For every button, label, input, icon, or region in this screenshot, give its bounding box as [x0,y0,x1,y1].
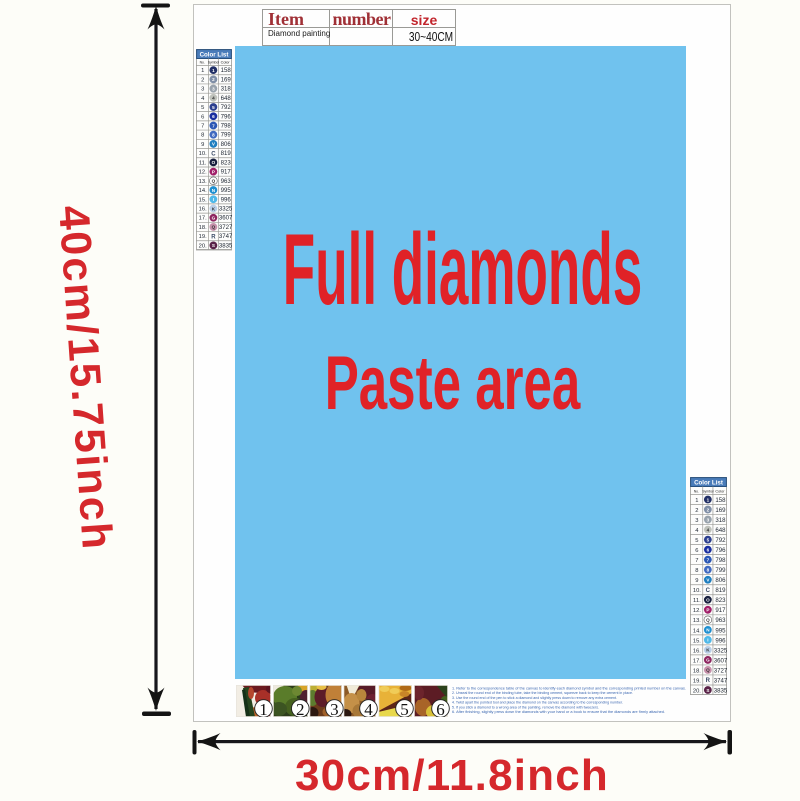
svg-text:2: 2 [212,77,215,82]
svg-text:2: 2 [296,700,305,717]
svg-text:963: 963 [221,178,232,185]
svg-text:3835: 3835 [219,242,232,249]
svg-text:O: O [706,598,710,603]
svg-text:1. Refer to the correspondence: 1. Refer to the correspondence table of … [452,687,686,691]
svg-text:19.: 19. [199,234,207,240]
svg-text:158: 158 [715,497,726,504]
svg-text:I: I [213,197,214,202]
svg-text:3: 3 [330,700,339,717]
svg-text:963: 963 [715,617,726,624]
svg-text:3727: 3727 [714,667,727,674]
svg-text:1: 1 [707,497,710,502]
svg-text:2. Unseal the round end of the: 2. Unseal the round end of the binding t… [452,691,633,695]
svg-text:G: G [212,216,216,221]
svg-text:S: S [212,243,215,248]
svg-text:917: 917 [221,169,232,176]
svg-text:Q: Q [706,668,710,673]
svg-text:4: 4 [364,700,373,717]
svg-text:799: 799 [715,567,726,574]
svg-text:Q: Q [212,225,216,230]
svg-text:169: 169 [715,507,726,514]
svg-text:15.: 15. [199,197,207,203]
svg-text:R: R [211,234,216,240]
svg-text:18.: 18. [199,225,207,231]
svg-text:3325: 3325 [219,206,232,213]
svg-text:No.: No. [200,61,205,65]
svg-text:P: P [706,608,709,613]
svg-text:10.: 10. [199,151,207,157]
svg-text:16.: 16. [693,648,701,654]
svg-text:4. Twist apart the pointed too: 4. Twist apart the pointed tool and plac… [452,701,623,705]
svg-text:13.: 13. [693,618,701,624]
svg-text:Symbol: Symbol [702,490,714,494]
svg-text:12.: 12. [199,170,207,176]
svg-text:P: P [212,169,215,174]
svg-text:14.: 14. [199,188,207,194]
svg-text:995: 995 [221,187,232,194]
svg-text:1: 1 [201,68,204,74]
svg-text:4: 4 [212,96,215,101]
svg-text:17.: 17. [693,658,701,664]
svg-text:18.: 18. [693,668,701,674]
svg-text:823: 823 [221,159,232,166]
svg-text:17.: 17. [199,216,207,222]
svg-text:806: 806 [221,141,232,148]
svg-text:Q: Q [212,179,216,184]
svg-text:20.: 20. [199,243,207,249]
svg-text:5: 5 [707,537,710,542]
svg-text:5: 5 [201,105,204,111]
svg-text:Color List: Color List [694,479,723,486]
svg-text:7: 7 [212,123,215,128]
svg-text:2: 2 [707,507,710,512]
svg-text:798: 798 [221,122,232,129]
svg-text:806: 806 [715,577,726,584]
svg-text:20.: 20. [693,688,701,694]
svg-text:318: 318 [715,517,726,524]
svg-text:R: R [706,678,711,684]
svg-text:8: 8 [695,568,698,574]
svg-text:996: 996 [715,637,726,644]
svg-text:9: 9 [695,578,698,584]
svg-text:6: 6 [695,548,698,554]
svg-text:819: 819 [715,587,726,594]
svg-text:3607: 3607 [219,215,232,222]
svg-text:796: 796 [715,547,726,554]
svg-text:3: 3 [212,86,215,91]
svg-text:6. After finishing, slightly p: 6. After finishing, slightly press down … [452,710,665,714]
svg-text:8: 8 [201,133,204,139]
svg-text:799: 799 [221,132,232,139]
svg-text:5: 5 [695,538,698,544]
svg-text:6: 6 [436,700,445,717]
svg-text:S: S [706,688,709,693]
svg-text:3: 3 [695,518,698,524]
svg-text:995: 995 [715,627,726,634]
svg-text:16.: 16. [199,207,207,213]
svg-text:I: I [707,638,708,643]
svg-text:318: 318 [221,86,232,93]
svg-text:10.: 10. [693,588,701,594]
svg-text:3835: 3835 [714,687,727,694]
svg-text:Q: Q [706,618,710,623]
svg-text:Symbol: Symbol [208,61,220,65]
svg-text:Color: Color [221,61,231,65]
svg-text:792: 792 [715,537,726,544]
svg-text:11.: 11. [693,598,701,604]
svg-text:796: 796 [221,113,232,120]
svg-text:15.: 15. [693,638,701,644]
svg-text:Color: Color [715,490,725,494]
svg-text:11.: 11. [199,160,207,166]
svg-text:C: C [706,588,711,594]
svg-text:169: 169 [221,76,232,83]
svg-text:2: 2 [201,77,204,83]
svg-text:Color List: Color List [200,51,229,58]
svg-text:8: 8 [707,567,710,572]
svg-text:917: 917 [715,607,726,614]
svg-text:3747: 3747 [714,677,727,684]
svg-text:O: O [212,160,216,165]
svg-text:G: G [706,658,710,663]
svg-text:3: 3 [707,517,710,522]
svg-text:1: 1 [695,498,698,504]
svg-text:5. If you stick a diamond to a: 5. If you stick a diamond to a wrong are… [452,705,599,709]
svg-text:4: 4 [707,527,710,532]
svg-text:2: 2 [695,508,698,514]
svg-text:7: 7 [707,557,710,562]
svg-text:3325: 3325 [714,647,727,654]
svg-text:6: 6 [201,114,204,120]
svg-text:8: 8 [212,132,215,137]
svg-text:3. Use the round end of the pe: 3. Use the round end of the pen to stick… [452,696,617,700]
svg-text:9: 9 [201,142,204,148]
svg-text:1: 1 [259,700,268,717]
svg-text:5: 5 [400,700,409,717]
svg-text:158: 158 [221,67,232,74]
svg-text:6: 6 [212,114,215,119]
svg-text:No.: No. [694,490,699,494]
svg-text:3607: 3607 [714,657,727,664]
svg-text:996: 996 [221,196,232,203]
svg-text:3727: 3727 [219,224,232,231]
svg-text:19.: 19. [693,678,701,684]
svg-text:819: 819 [221,150,232,157]
svg-text:648: 648 [715,527,726,534]
svg-text:792: 792 [221,104,232,111]
svg-text:7: 7 [201,123,204,129]
svg-text:3747: 3747 [219,233,232,240]
svg-text:798: 798 [715,557,726,564]
svg-text:823: 823 [715,597,726,604]
svg-text:5: 5 [212,105,215,110]
svg-text:13.: 13. [199,179,207,185]
svg-text:648: 648 [221,95,232,102]
svg-text:14.: 14. [693,628,701,634]
svg-text:3: 3 [201,87,204,93]
svg-text:6: 6 [707,547,710,552]
svg-text:7: 7 [695,558,698,564]
svg-text:1: 1 [212,68,215,73]
svg-text:C: C [211,151,216,157]
svg-text:12.: 12. [693,608,701,614]
